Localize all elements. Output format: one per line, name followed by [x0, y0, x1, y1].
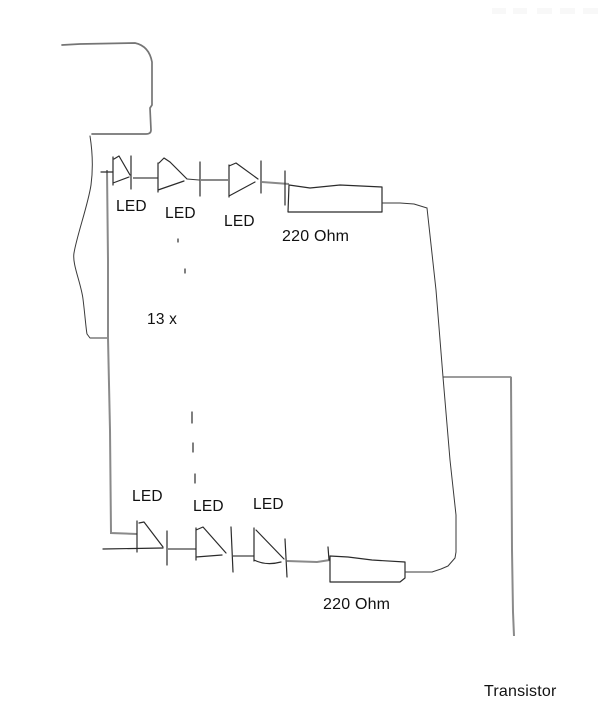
transistor-label: Transistor — [484, 683, 557, 701]
resistor-value-label: 220 Ohm — [282, 228, 349, 246]
resistor-value-label: 220 Ohm — [323, 596, 390, 614]
bottom-led-string — [103, 521, 432, 582]
resistor-symbol — [328, 547, 405, 582]
led-diode-icon — [229, 161, 261, 197]
faint-artifact-dashes — [492, 8, 598, 14]
string-count-label: 13 x — [147, 311, 177, 328]
left-rail-wire — [107, 170, 137, 534]
led-diode-icon — [103, 521, 167, 565]
led-diode-icon — [113, 156, 131, 189]
transistor-lead-wire — [443, 377, 514, 636]
resistor-symbol — [285, 171, 382, 212]
supply-feed-wire — [62, 43, 152, 134]
led-label: LED — [165, 205, 196, 222]
led-label: LED — [224, 213, 255, 230]
led-label: LED — [132, 488, 163, 505]
led-diode-icon — [254, 528, 287, 577]
led-label: LED — [253, 496, 284, 513]
schematic-canvas — [0, 0, 600, 720]
led-diode-icon — [158, 158, 200, 196]
led-diode-icon — [196, 527, 233, 572]
led-label: LED — [116, 198, 147, 215]
schematic-page: LED LED LED 220 Ohm 13 x LED LED LED 220… — [0, 0, 600, 720]
top-led-string — [101, 156, 427, 212]
led-label: LED — [193, 498, 224, 515]
dashed-continuation-line — [178, 239, 195, 483]
left-outer-wire — [74, 136, 107, 338]
right-bus-wire — [405, 208, 456, 572]
